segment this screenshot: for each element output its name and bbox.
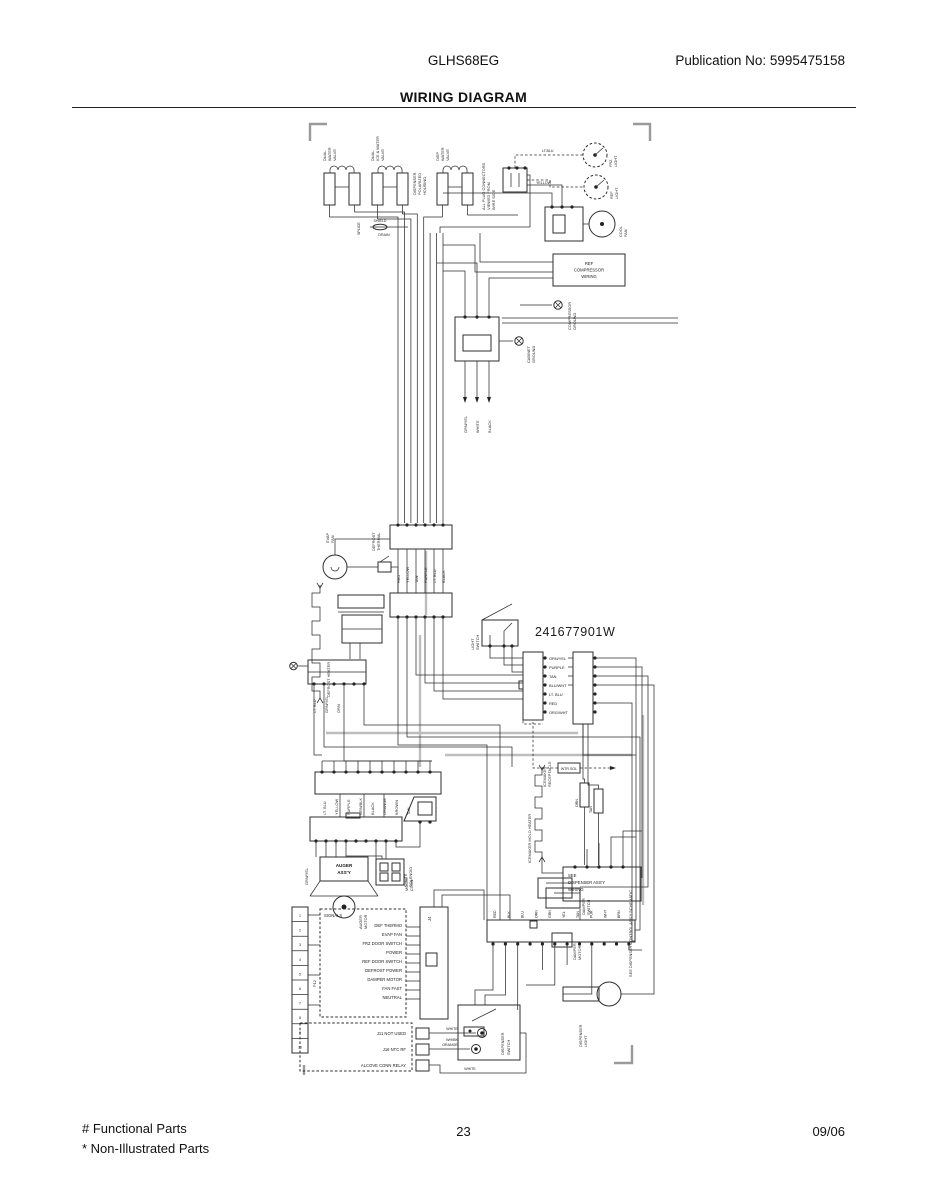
bracket-bottom-right [614,1045,632,1063]
splice-symbol: SHIELD DRAIN SPLICE [357,219,408,237]
svg-text:5: 5 [299,972,301,976]
res-orn-label: ORN [575,799,579,807]
svg-text:GRN/YEL: GRN/YEL [463,415,468,433]
connector-c: ORN/YEL PURPLE TAN BLU/WHT LT. BLU RED O… [519,652,568,724]
svg-text:RECEPTACLE: RECEPTACLE [547,761,552,787]
svg-text:SWITCH: SWITCH [475,634,480,650]
svg-text:LIGHT: LIGHT [583,1035,588,1047]
svg-text:LT. BLU: LT. BLU [322,801,327,815]
cool-fan-motor: COOL FAN [589,211,628,237]
publication-number: Publication No: 5995475158 [675,53,845,68]
auger-assy: AUGER ASS'Y AUGER MOTOR GRN/YEL [304,857,378,929]
date-code: 09/06 [812,1124,845,1139]
svg-text:CONN: CONN [409,879,414,891]
svg-text:TAN: TAN [414,575,419,583]
svg-text:BRN: BRN [617,910,621,918]
valve2-label: VALVE [380,149,385,161]
svg-text:YELLOW: YELLOW [405,566,410,583]
svg-text:GRN/YEL: GRN/YEL [324,695,329,713]
icemaker-components: ORN TAN ICEMAKER MOLD HEATER [527,765,603,873]
svg-text:PURPLE: PURPLE [549,665,565,670]
edge-strip-connector: 1 2 3 4 5 6 7 8 9 10 P12 [292,907,320,1053]
svg-text:ORN/BLK: ORN/BLK [358,798,363,815]
chute-solenoid: CHUTE SOLENOID [403,797,436,887]
water-valve-2: DUAL ICE & WATER VALVE [370,136,408,219]
terminal-wires: WHITE WH/BK ORANGE WHITE WH/BK [429,1027,526,1075]
diagram-part-number: 241677901W [535,625,615,639]
dispenser-schematic-note: SEE DISPENSER CONTROL ASS'Y SCHEMATIC [628,890,633,977]
svg-text:PURPLE: PURPLE [423,567,428,583]
j4-label: J4 [427,916,432,921]
water-valve-1: DUAL WATER VALVE [322,147,360,217]
wtr-sol-label: WTR SOL [561,767,577,771]
plug-note: ALL PLUG CONNECTORS VIEWED FROM WIRE SID… [481,162,496,210]
svg-text:ORG/WHT: ORG/WHT [549,710,568,715]
freezer-light: FRZ LIGHT [583,143,618,167]
power-supply-wires: GRN/YEL WHITE BLACK [463,361,492,433]
white-label: WHITE [446,1027,458,1031]
svg-text:WIRING: WIRING [581,274,597,279]
svg-text:BLACK: BLACK [441,570,446,583]
svg-text:BLU/WHT: BLU/WHT [549,683,567,688]
svg-text:GRN: GRN [548,910,552,918]
svg-text:WHITE: WHITE [475,420,480,433]
defrost-thermal-label: THERMAL [376,532,381,551]
svg-text:SEE: SEE [568,873,577,878]
svg-text:BROWN: BROWN [394,800,399,815]
gray-traces [326,551,643,905]
svg-text:FRZ DOOR SWITCH: FRZ DOOR SWITCH [362,941,402,946]
svg-text:WHT: WHT [603,909,607,918]
svg-text:FAN: FAN [623,229,628,237]
shield-label: SHIELD [374,219,387,223]
svg-text:6: 6 [299,987,301,991]
wiring-diagram: DUAL WATER VALVE DUAL ICE & WATER VALVE … [280,115,680,1075]
yellow-label: YELLOW [536,181,552,185]
svg-text:ORN: ORN [336,704,341,713]
title-rule [72,107,856,108]
bracket-bottom-left [304,1065,318,1075]
svg-text:AUGER: AUGER [336,863,353,868]
svg-text:RED: RED [396,575,401,583]
lt-blu-label: LT.BLU [542,149,554,153]
svg-text:DEFROST POWER: DEFROST POWER [365,968,402,973]
svg-text:DISPENSER: DISPENSER [500,1032,505,1055]
svg-text:BLACK: BLACK [487,420,492,433]
page-title: WIRING DIAGRAM [0,89,927,105]
connector-e: LT. BLU YELLOW PURPLE ORN/BLK BLACK ORAN… [315,770,441,815]
svg-text:LT. BLU: LT. BLU [312,699,317,713]
svg-text:MOTOR: MOTOR [363,914,368,929]
svg-text:RED: RED [549,701,557,706]
svg-text:ORN: ORN [534,910,538,918]
svg-text:RED: RED [493,910,497,918]
svg-text:J16 NTC RF: J16 NTC RF [383,1047,407,1052]
svg-text:YELLOW: YELLOW [334,798,339,815]
svg-text:YEL: YEL [562,911,566,918]
svg-text:BLK: BLK [507,911,511,918]
ref-compressor-box: REF COMPRESSOR WIRING [443,233,625,315]
jumper-list-box: J11 NOT USED J16 NTC RF ALCOVE CONN RELA… [300,1023,429,1071]
compressor-ground: COMPRESSOR GROUND [520,301,577,330]
svg-text:SWITCH: SWITCH [586,899,591,915]
svg-text:HOUSING: HOUSING [422,177,427,195]
white-label-2: WHITE [464,1067,476,1071]
svg-text:SWITCH: SWITCH [506,1039,511,1055]
svg-text:REF: REF [585,261,594,266]
svg-text:BLU: BLU [521,911,525,918]
svg-text:DISPENSER ASS'Y: DISPENSER ASS'Y [568,880,605,885]
page-number: 23 [0,1124,927,1139]
svg-text:LIGHT: LIGHT [614,187,619,199]
connector-g: RED BLK BLU ORN GRN YEL TAN PUR WHT BRN [475,909,642,1010]
svg-text:ORANGE: ORANGE [382,798,387,815]
fan-relay [443,185,589,241]
svg-text:ALCOVE CONN RELAY: ALCOVE CONN RELAY [361,1063,406,1068]
svg-text:POWER: POWER [386,950,402,955]
light-switch: LIGHT SWITCH [470,604,523,672]
drain-label: DRAIN [378,233,390,237]
j4-connector: J4 [406,890,510,1019]
svg-text:ASS'Y: ASS'Y [337,870,351,875]
footnote-nonillustrated: * Non-Illustrated Parts [82,1139,209,1159]
signals-header: SIGNALS [324,913,342,918]
connector-d [568,652,654,994]
svg-text:TAN: TAN [576,911,580,918]
svg-text:DAMPER MOTOR: DAMPER MOTOR [367,977,402,982]
svg-text:3: 3 [299,943,301,947]
defrost-thermostat [378,556,398,593]
manual-page: GLHS68EG Publication No: 5995475158 WIRI… [0,0,927,1200]
svg-text:1: 1 [299,914,301,918]
svg-text:TAN: TAN [549,674,557,679]
mold-heater-label: ICEMAKER MOLD HEATER [527,814,532,863]
water-valve-3: DISP WATER VALVE [435,147,473,217]
housing-note: DISPENSER POLARIZED HOUSING [412,172,427,195]
orange-label: ORANGE [442,1043,458,1047]
res-tan-label: TAN [589,806,593,813]
wire-lt-blu [515,155,583,168]
bracket-top-right [633,124,650,141]
svg-text:FAN FAST: FAN FAST [382,986,402,991]
cabinet-terminal-block: CABINET GROUND [437,263,678,363]
svg-text:GROUND: GROUND [572,313,577,330]
svg-text:4: 4 [299,958,301,962]
strip-label: P12 [312,980,317,987]
svg-text:WIRE SIDE: WIRE SIDE [491,189,496,210]
bracket-top-left [310,124,327,141]
svg-text:2: 2 [299,929,301,933]
svg-text:DEF THERMO: DEF THERMO [374,923,402,928]
cabinet-ground-label: GROUND [531,346,536,363]
svg-text:7: 7 [299,1002,301,1006]
ref-light: REF LIGHT [584,175,619,199]
wh-bk-label: WH/BK [446,1038,458,1042]
svg-text:LT. BLU: LT. BLU [549,692,563,697]
svg-text:MOTOR: MOTOR [577,945,582,960]
svg-text:8: 8 [299,1016,301,1020]
light-terminal-block [503,166,527,192]
svg-text:REF DOOR SWITCH: REF DOOR SWITCH [362,959,402,964]
grn-yel-label: GRN/YEL [304,867,309,885]
main-harness-bus [398,233,443,523]
splice-label: SPLICE [357,222,361,235]
heater-housing [338,595,384,659]
dispenser-switch-box: DISPENSER SWITCH [458,1005,520,1060]
svg-text:J11 NOT USED: J11 NOT USED [377,1031,406,1036]
defrost-heater-label: DEFROST HEATER [326,662,331,697]
svg-text:BLACK: BLACK [370,802,375,815]
valve1-label: VALVE [332,149,337,161]
svg-text:LIGHT: LIGHT [613,155,618,167]
valve3-label: VALVE [445,149,450,161]
svg-text:LT. BLU: LT. BLU [432,569,437,583]
svg-text:NEUTRAL: NEUTRAL [382,995,402,1000]
svg-text:FAN: FAN [330,535,335,543]
svg-text:COMPRESSOR: COMPRESSOR [574,268,604,273]
svg-text:EVAP FAN: EVAP FAN [382,932,402,937]
svg-text:ORN/YEL: ORN/YEL [549,656,567,661]
